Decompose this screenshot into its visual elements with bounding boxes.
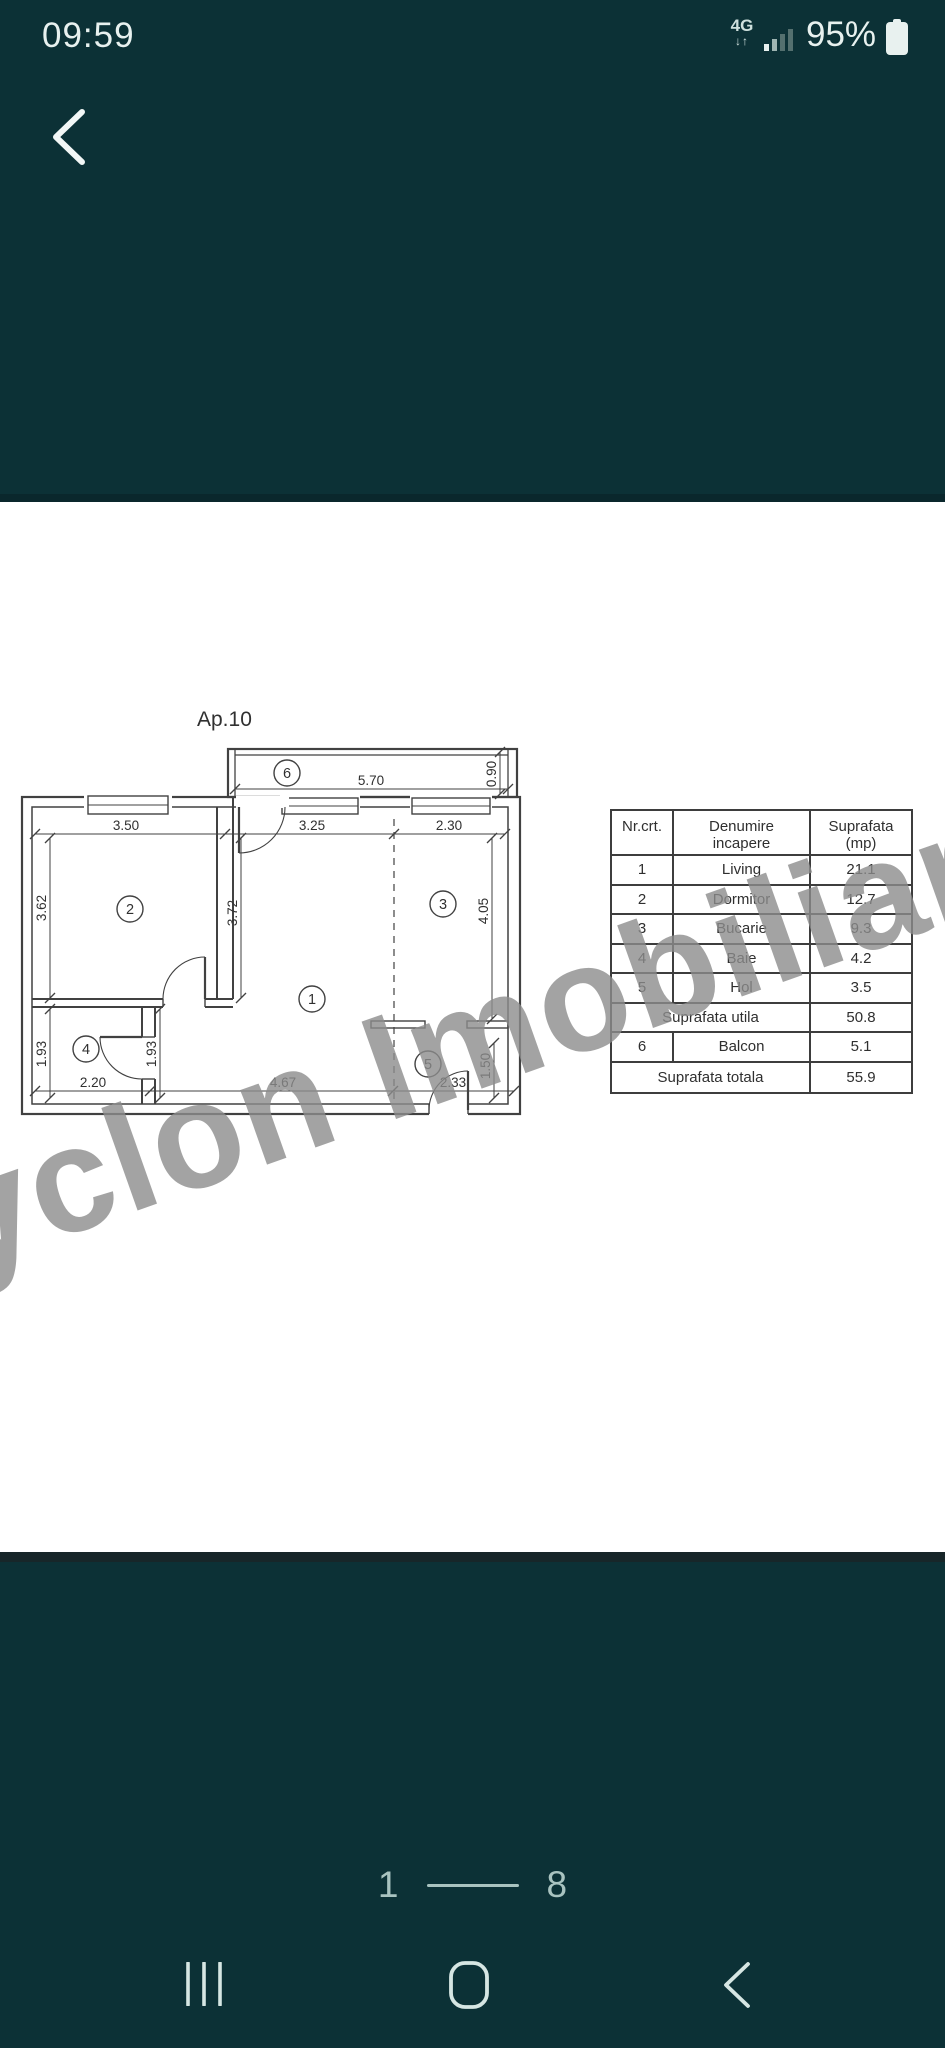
signal-strength-icon xyxy=(764,23,798,51)
back-button[interactable] xyxy=(40,100,100,172)
back-nav-icon xyxy=(718,1961,756,2009)
room-number: 3 xyxy=(439,897,447,913)
table-cell: Bucarie xyxy=(674,915,811,945)
room-number: 2 xyxy=(126,902,134,918)
table-header-cell: Denumire incapere xyxy=(674,811,811,856)
chevron-left-icon xyxy=(40,100,100,172)
room-number: 6 xyxy=(283,766,291,782)
total-pages: 8 xyxy=(547,1864,568,1906)
table-cell: Balcon xyxy=(674,1033,811,1063)
recents-icon xyxy=(184,1962,224,2006)
current-page: 1 xyxy=(378,1864,399,1906)
table-header-cell: Nr.crt. xyxy=(612,811,674,856)
table-cell: 4.2 xyxy=(811,945,911,975)
clock: 09:59 xyxy=(42,16,135,56)
table-cell: 9.3 xyxy=(811,915,911,945)
table-cell: 5.1 xyxy=(811,1033,911,1063)
dim-label: 2.33 xyxy=(440,1075,466,1090)
table-cell: 1 xyxy=(612,856,674,886)
dim-label: 1.50 xyxy=(478,1053,493,1079)
dim-label: 4.05 xyxy=(476,898,491,924)
dim-label: 2.30 xyxy=(436,818,462,833)
dim-label: 4.67 xyxy=(270,1075,296,1090)
table-cell: Hol xyxy=(674,974,811,1004)
table-cell: 55.9 xyxy=(811,1063,911,1093)
back-nav-button[interactable] xyxy=(718,1961,756,2012)
dim-label: 0.90 xyxy=(484,761,499,787)
home-icon xyxy=(449,1961,489,2009)
photo-top-edge xyxy=(0,494,945,502)
table-cell: 2 xyxy=(612,886,674,916)
dim-label: 3.62 xyxy=(34,895,49,921)
recents-button[interactable] xyxy=(184,1962,224,2009)
plan-title: Ap.10 xyxy=(197,708,252,731)
dim-label: 3.25 xyxy=(299,818,325,833)
table-cell: 3.5 xyxy=(811,974,911,1004)
page-indicator: 1 8 xyxy=(0,1864,945,1906)
table-cell: 6 xyxy=(612,1033,674,1063)
table-cell: 21.1 xyxy=(811,856,911,886)
battery-percent: 95% xyxy=(806,15,876,55)
table-cell: Dormitor xyxy=(674,886,811,916)
dim-label: 2.20 xyxy=(80,1075,106,1090)
page-indicator-bar xyxy=(427,1884,519,1887)
room-number: 1 xyxy=(308,992,316,1008)
dim-label: 1.93 xyxy=(144,1041,159,1067)
dim-label: 3.72 xyxy=(225,900,240,926)
room-number: 5 xyxy=(424,1057,432,1073)
dim-label: 5.70 xyxy=(358,773,384,788)
dim-label: 3.50 xyxy=(113,818,139,833)
network-indicator: 4G ↓↑ xyxy=(722,17,762,47)
network-type-label: 4G xyxy=(722,17,762,34)
room-number: 4 xyxy=(82,1042,90,1058)
table-cell: Living xyxy=(674,856,811,886)
battery-icon xyxy=(886,19,908,55)
table-header-cell: Suprafata (mp) xyxy=(811,811,911,856)
table-cell: Suprafata totala xyxy=(612,1063,811,1093)
table-cell: 5 xyxy=(612,974,674,1004)
table-cell: 3 xyxy=(612,915,674,945)
photo-bottom-edge xyxy=(0,1552,945,1562)
data-arrows-icon: ↓↑ xyxy=(722,35,762,47)
listing-photo[interactable]: Ap.10 xyxy=(0,502,945,1552)
home-button[interactable] xyxy=(449,1961,489,2012)
table-cell: 4 xyxy=(612,945,674,975)
phone-screen: 09:59 4G ↓↑ 95% Ap.10 xyxy=(0,0,945,2048)
dim-label: 1.93 xyxy=(34,1041,49,1067)
table-cell: 12.7 xyxy=(811,886,911,916)
area-table: Nr.crt. Denumire incapere Suprafata (mp)… xyxy=(610,809,913,1094)
apartment-walls xyxy=(22,797,520,1114)
table-cell: 50.8 xyxy=(811,1004,911,1034)
table-cell: Baie xyxy=(674,945,811,975)
table-cell: Suprafata utila xyxy=(612,1004,811,1034)
